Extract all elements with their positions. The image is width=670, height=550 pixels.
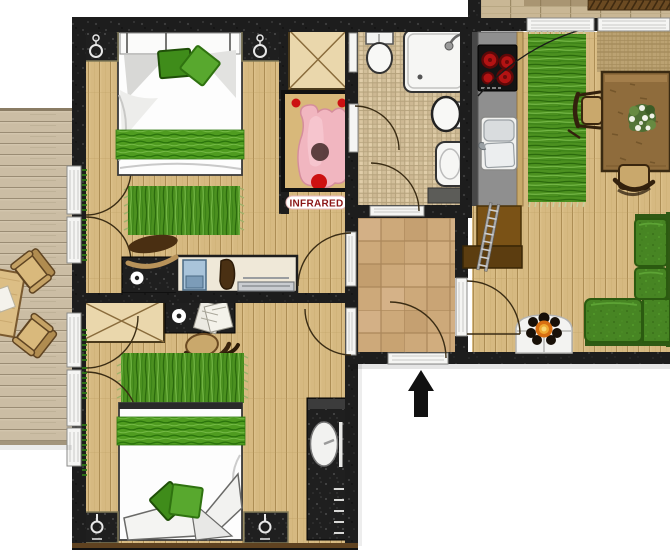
svg-text:INFRARED: INFRARED [289, 199, 343, 210]
